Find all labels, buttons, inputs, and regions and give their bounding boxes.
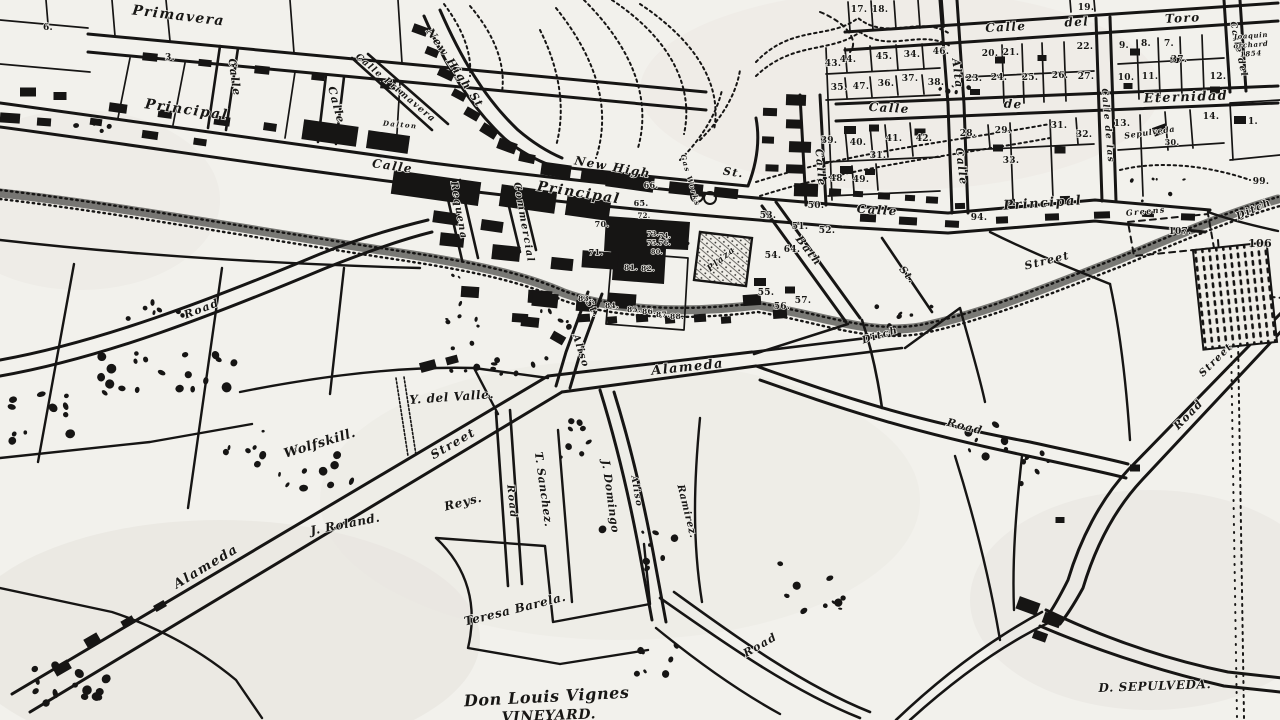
parcel-number: 46. [933, 47, 950, 57]
parcel-number: 72. [637, 211, 650, 220]
parcel-number: 107. [1168, 227, 1191, 237]
building-mark [853, 191, 863, 198]
parcel-number: 70. [595, 219, 610, 229]
parcel-number: 22. [1077, 42, 1094, 52]
parcel-number: 44. [840, 55, 857, 65]
building-mark [37, 118, 52, 127]
street-label: Eternidad [1142, 89, 1228, 107]
parcel-number: 55. [758, 288, 775, 298]
parcel-number: 28. [960, 129, 977, 139]
parcel-number: 14. [1203, 112, 1220, 122]
parcel-number: 51. [792, 222, 809, 232]
parcel-number: 49. [853, 175, 870, 185]
parcel-number: 40. [850, 138, 867, 148]
building-mark [955, 203, 965, 209]
building-mark [1094, 211, 1110, 219]
building-mark [878, 192, 890, 200]
parcel-number: 48. [830, 174, 847, 184]
building-mark [754, 278, 766, 286]
building-mark [1124, 83, 1133, 89]
parcel-number: 21. [1003, 48, 1020, 58]
parcel-number: 1. [1248, 117, 1258, 127]
vineyard-hatch-block [1193, 242, 1277, 349]
street-label: del [1064, 14, 1089, 29]
parcel-number: 7. [1164, 39, 1174, 49]
parcel-number: 34. [904, 50, 921, 60]
building-mark [54, 92, 67, 100]
building-mark [607, 316, 617, 324]
building-mark [786, 164, 804, 174]
parcel-number: 45. [876, 52, 893, 62]
parcel-number: 52. [819, 226, 836, 236]
building-mark [1181, 213, 1195, 220]
parcel-number: 29. [995, 126, 1012, 136]
parcel-number: 84. [605, 301, 619, 310]
parcel-number: 10. [1118, 73, 1135, 83]
street-label: de [1003, 97, 1023, 112]
parcel-number: 12. [1210, 72, 1227, 82]
parcel-number: 24. [991, 73, 1008, 83]
parcel-number: 71. [589, 247, 604, 257]
building-mark [763, 108, 777, 116]
building-mark [840, 166, 852, 174]
parcel-number: 25. [1022, 73, 1039, 83]
parcel-number: 35. [831, 83, 848, 93]
parcel-number: 57. [795, 296, 812, 306]
parcel-number: 41. [886, 134, 903, 144]
orchard-dot [150, 299, 154, 306]
parcel-number: 85. [627, 305, 641, 314]
building-mark [20, 88, 36, 97]
parcel-number: 18. [872, 5, 889, 15]
parcel-number: 23. [966, 74, 983, 84]
parcel-number: 13. [1114, 119, 1131, 129]
owner-label: VINEYARD. [501, 706, 596, 720]
parcel-number: 106 [1248, 237, 1272, 250]
building-mark [786, 94, 806, 106]
building-mark [869, 125, 879, 132]
parcel-number: 64. [784, 245, 801, 255]
parcel-number: 37. [1171, 55, 1188, 65]
building-mark [905, 195, 915, 202]
parcel-number: 99. [1253, 177, 1270, 187]
parcel-number: 47. [853, 82, 870, 92]
owner-label: 1854 [1240, 48, 1262, 59]
parcel-number: 30. [1165, 137, 1180, 147]
building-mark [996, 216, 1008, 223]
parcel-number: 65. [634, 198, 649, 208]
parcel-number: 82. [641, 264, 655, 273]
building-mark [142, 52, 158, 62]
street-label: Toro [1165, 10, 1201, 26]
parcel-number: 38. [928, 78, 945, 88]
parcel-number: 33. [1003, 156, 1020, 166]
parcel-number: 26. [1052, 71, 1069, 81]
parcel-number: 87. [656, 310, 670, 319]
building-mark [1130, 465, 1140, 472]
building-mark [899, 217, 917, 226]
parcel-number: 11. [1142, 72, 1159, 82]
parcel-number: 80. [651, 248, 663, 256]
street-label: Calle [868, 100, 910, 116]
building-mark [786, 119, 802, 129]
building-mark [550, 257, 573, 271]
building-mark [1045, 213, 1059, 220]
parcel-number: 19. [1078, 3, 1095, 13]
building-mark [789, 141, 811, 153]
parcel-number: 86. [642, 307, 656, 316]
parcel-number: 17. [851, 5, 868, 15]
building-mark [1234, 116, 1246, 124]
parcel-number: 32. [1076, 130, 1093, 140]
parcel-number: 76. [659, 239, 671, 247]
building-mark [993, 145, 1003, 152]
parcel-number: 94. [971, 213, 988, 223]
parcel-number: 66. [644, 180, 659, 190]
parcel-number: 56. [774, 302, 791, 312]
building-mark [531, 292, 558, 309]
parcel-number: 53. [760, 211, 777, 221]
building-mark [762, 136, 774, 143]
building-mark [1056, 517, 1065, 523]
building-mark [311, 73, 325, 81]
parcel-number: 8. [1141, 39, 1151, 49]
building-mark [1055, 147, 1066, 154]
parcel-number: 39. [821, 136, 838, 146]
parcel-number: 9. [1119, 41, 1129, 51]
building-mark [794, 183, 818, 197]
parcel-number: 81. [624, 263, 638, 272]
building-mark [491, 244, 520, 262]
parcel-number: 36. [878, 79, 895, 89]
parcel-number: 75. [647, 239, 659, 247]
building-mark [461, 286, 480, 298]
parcel-number: 88. [670, 312, 684, 321]
parcel-number: 6. [43, 23, 53, 33]
building-mark [1130, 49, 1140, 56]
parcel-number: 50. [808, 201, 825, 211]
building-mark [694, 314, 707, 323]
map-canvas: PrimaveraPrincipalCalleCalleCalle Primav… [0, 0, 1280, 720]
building-mark [198, 59, 212, 67]
parcel-number: 83. [578, 294, 592, 303]
street-label: Calle [856, 202, 898, 219]
parcel-number: 20. [982, 49, 999, 59]
building-mark [785, 287, 795, 294]
parcel-number: 3. [165, 53, 175, 63]
building-mark [945, 220, 959, 228]
building-mark [829, 188, 841, 196]
building-mark [1038, 55, 1047, 61]
building-mark [578, 314, 591, 323]
parcel-number: 31. [1051, 121, 1068, 131]
parcel-number: 42. [916, 134, 933, 144]
parcel-number: 54. [765, 251, 782, 261]
building-mark [254, 65, 270, 75]
parcel-number: 31. [870, 151, 887, 161]
parcel-number: 73. [647, 230, 659, 238]
building-mark [765, 164, 778, 171]
historical-map-scan: PrimaveraPrincipalCalleCalleCalle Primav… [0, 0, 1280, 720]
street-label: Calle [985, 19, 1027, 35]
parcel-number: 37. [902, 74, 919, 84]
building-mark [0, 112, 20, 123]
parcel-number: 27. [1078, 72, 1095, 82]
building-mark [721, 316, 731, 324]
building-mark [844, 126, 856, 134]
building-mark [521, 316, 540, 328]
building-mark [926, 196, 938, 204]
building-mark [970, 89, 980, 95]
